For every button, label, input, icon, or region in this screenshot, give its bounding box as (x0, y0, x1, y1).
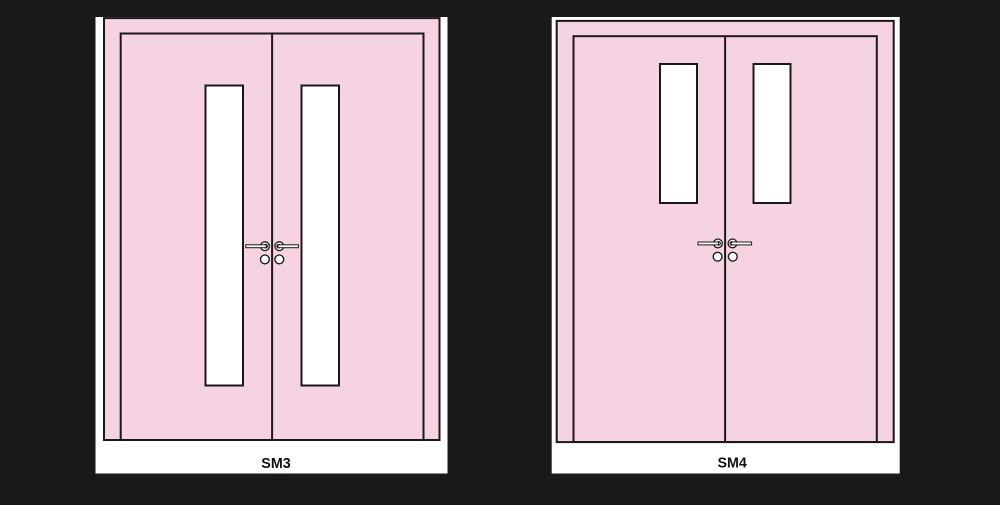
svg-text:SM3: SM3 (261, 456, 290, 472)
svg-text:SM4: SM4 (717, 456, 746, 472)
